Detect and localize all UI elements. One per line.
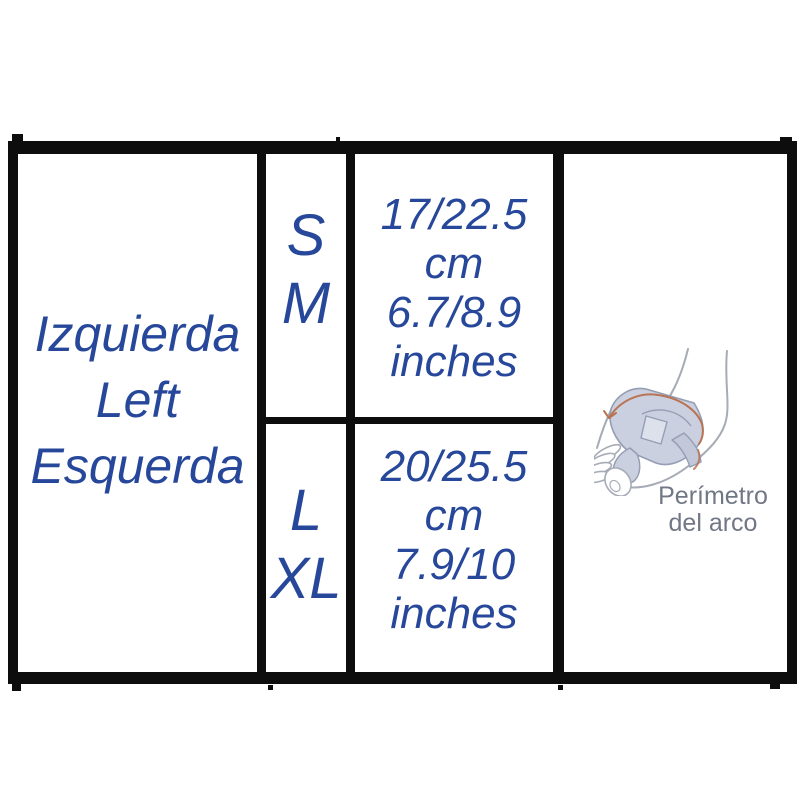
measurement-inch-unit: inches [390, 337, 517, 386]
size-table-inner: Izquierda Left Esquerda S M L XL 17/22.5… [18, 154, 787, 672]
size-cell-l-xl: L XL [266, 421, 346, 669]
caption-line-del-arco: del arco [628, 510, 798, 537]
caption-line-perimetro: Perímetro [628, 483, 798, 510]
scan-speck [12, 134, 23, 142]
foot-brace-illustration-icon [594, 336, 779, 496]
scan-speck [12, 684, 21, 691]
measurement-cm-value: 17/22.5 [381, 190, 528, 239]
measurement-inch-unit: inches [390, 589, 517, 638]
measurement-cm-unit: cm [425, 491, 484, 540]
scan-speck [268, 685, 273, 690]
measurement-cell-s-m: 17/22.5 cm 6.7/8.9 inches [355, 156, 553, 419]
measurement-inch-value: 6.7/8.9 [387, 288, 522, 337]
size-cell-s-m: S M [266, 138, 346, 401]
measurement-cm-unit: cm [425, 239, 484, 288]
size-chart-image: Izquierda Left Esquerda S M L XL 17/22.5… [0, 0, 800, 800]
table-divider-vertical-2 [346, 154, 355, 672]
diagram-wrap: Perímetro del arco [564, 154, 787, 672]
size-label-s: S [287, 202, 326, 270]
measurement-inch-value: 7.9/10 [393, 540, 515, 589]
size-label-m: M [282, 270, 330, 338]
side-label-left: Left [96, 367, 179, 433]
scan-speck [780, 137, 792, 143]
side-label-izquierda: Izquierda [35, 301, 241, 367]
size-label-xl: XL [271, 545, 342, 613]
diagram-caption: Perímetro del arco [628, 483, 798, 537]
diagram-cell: Perímetro del arco [564, 154, 787, 672]
scan-speck [336, 137, 340, 142]
table-divider-vertical-3 [553, 154, 564, 672]
size-table: Izquierda Left Esquerda S M L XL 17/22.5… [8, 141, 797, 684]
scan-speck [770, 684, 780, 689]
side-label-cell: Izquierda Left Esquerda [18, 141, 257, 659]
table-divider-vertical-1 [257, 154, 266, 672]
size-label-l: L [290, 477, 322, 545]
scan-speck [558, 685, 563, 690]
measurement-cm-value: 20/25.5 [381, 442, 528, 491]
side-label-esquerda: Esquerda [30, 433, 244, 499]
measurement-cell-l-xl: 20/25.5 cm 7.9/10 inches [355, 416, 553, 664]
